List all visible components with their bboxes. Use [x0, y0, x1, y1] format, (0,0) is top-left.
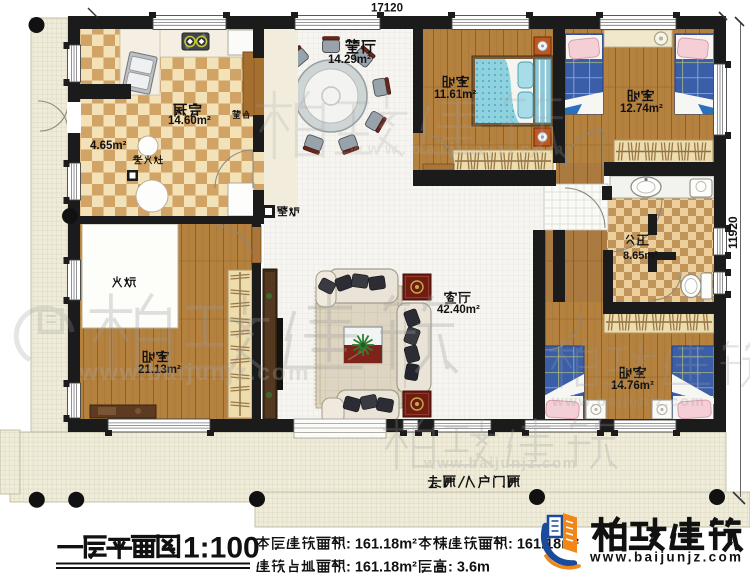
svg-text:12.74m²: 12.74m²: [620, 103, 663, 115]
svg-text:: 3.6m: : 3.6m: [448, 560, 490, 576]
svg-text:8.65m²: 8.65m²: [623, 250, 658, 262]
svg-text:4.65m²: 4.65m²: [90, 140, 127, 152]
svg-text:www.baijunjz.com: www.baijunjz.com: [551, 393, 705, 410]
svg-text:www.baijunjz.com: www.baijunjz.com: [589, 550, 743, 565]
svg-text:11.61m²: 11.61m²: [434, 89, 476, 101]
svg-text:www.baijunjz.com: www.baijunjz.com: [423, 455, 577, 472]
svg-text:: 161.18m²: : 161.18m²: [346, 560, 417, 576]
svg-text:www.baijunjz.com: www.baijunjz.com: [79, 359, 311, 385]
svg-text:17120: 17120: [371, 3, 403, 15]
svg-text:1:100: 1:100: [183, 532, 260, 565]
svg-text:14.29m²: 14.29m²: [328, 54, 371, 66]
svg-text:14.60m²: 14.60m²: [168, 115, 211, 127]
svg-text:: 161.18m²: : 161.18m²: [346, 537, 417, 553]
svg-text:11920: 11920: [726, 216, 740, 249]
svg-text:www.baijunjz.com: www.baijunjz.com: [349, 141, 568, 158]
